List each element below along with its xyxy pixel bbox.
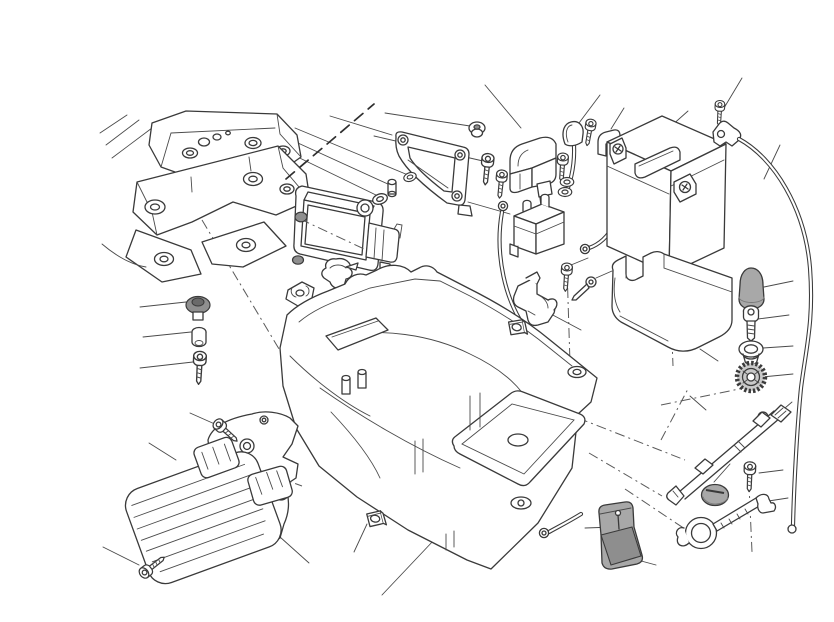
seat-lock-lever (676, 494, 775, 548)
strap-bolt (744, 306, 759, 341)
seat-lock-screw (743, 462, 755, 492)
parts-diagram (40, 16, 834, 606)
bracket-grommet (469, 122, 485, 137)
cable-clamp (713, 100, 741, 146)
strap-grommet (739, 341, 763, 365)
battery (607, 116, 726, 274)
knurled-nut (737, 363, 765, 391)
solenoid-cover (510, 137, 556, 205)
seat-lock-cap (702, 485, 729, 506)
battery-strap (612, 252, 732, 352)
bracket-screw (479, 153, 494, 185)
corner-cover (599, 502, 643, 569)
terminal-boot (563, 122, 583, 146)
starter-solenoid (510, 194, 564, 257)
section-cut-line (286, 104, 374, 179)
ground-cable-end (539, 514, 581, 538)
rear-subframe (100, 111, 310, 282)
tray-fasteners (186, 297, 210, 385)
ecu-spacer-stack (371, 171, 417, 206)
seat-lock-rod (667, 402, 792, 505)
rubber-cap (739, 268, 764, 309)
